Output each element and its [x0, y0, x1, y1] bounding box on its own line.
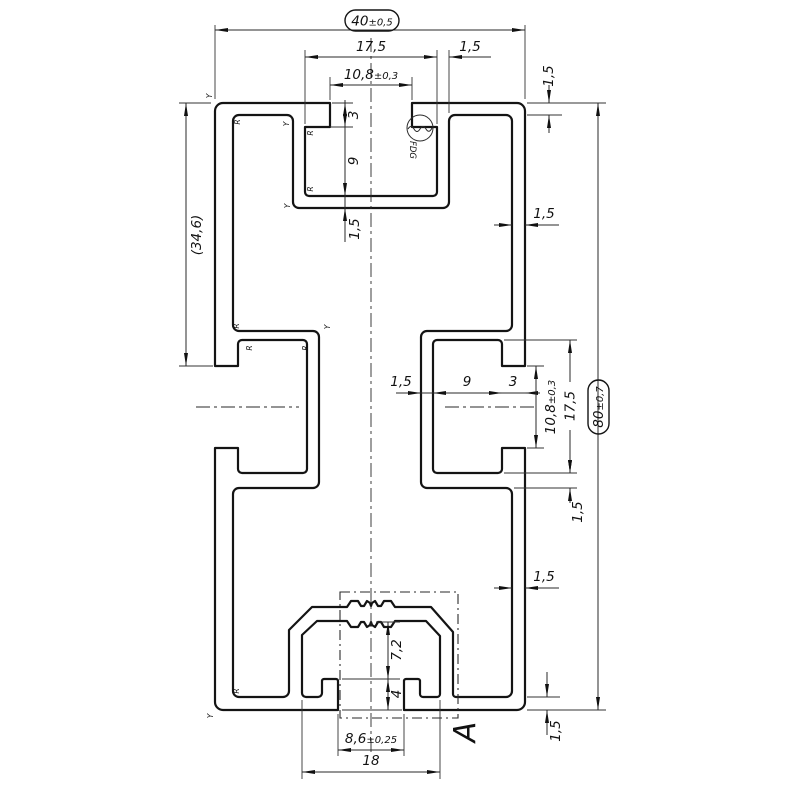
r-marker: R: [306, 130, 315, 135]
dim-top-wall-right: 1,5: [459, 39, 480, 55]
detail-label: A: [448, 722, 483, 745]
inner-hollow-contour: [233, 115, 512, 697]
dim-right-cavity-height: 17,5: [563, 391, 579, 421]
dim-ref-height-left: (34,6): [189, 215, 205, 256]
y-marker: Y: [205, 92, 214, 98]
dim-top-wall-thickness: 1,5: [541, 65, 557, 86]
dim-top-mouth: 10,8±0,3: [344, 67, 398, 83]
r-marker: R: [306, 186, 315, 191]
dimension-labels: 40±0,5 80±0,7 17,5 1,5 10,8±0,3 1,5 3 9 …: [189, 14, 607, 770]
drawing-canvas: A FDG: [0, 0, 800, 800]
dim-bottom-wall-thickness: 1,5: [548, 720, 564, 741]
r-marker: R: [301, 345, 310, 350]
dim-right-slot-depth: 9: [463, 374, 472, 390]
profile-outline: [215, 103, 525, 710]
y-marker: Y: [282, 120, 291, 126]
r-marker: R: [232, 323, 241, 328]
r-marker: R: [245, 345, 254, 350]
y-marker: Y: [283, 202, 292, 208]
r-marker: R: [232, 688, 241, 693]
dim-bottom-hook-height: 4: [389, 690, 405, 699]
extension-lines: [179, 25, 606, 779]
extrusion-profile-drawing: A FDG: [0, 0, 800, 800]
r-marker: R: [233, 119, 242, 124]
dim-top-slot-depth: 9: [346, 157, 362, 166]
dim-bottom-cavity-width: 18: [362, 753, 379, 769]
dim-right-mouth: 10,8±0,3: [543, 380, 559, 434]
y-marker: Y: [323, 323, 332, 329]
centerlines: [196, 38, 537, 756]
y-marker: Y: [206, 712, 215, 718]
dim-bottom-port-depth: 7,2: [389, 639, 405, 660]
dim-top-cavity-width: 17,5: [356, 39, 386, 55]
dim-right-slot-bottom-wall: 1,5: [570, 501, 586, 522]
dim-right-back-wall: 1,5: [390, 374, 411, 390]
dim-overall-width: 40±0,5: [351, 14, 392, 30]
dim-right-wall-upper: 1,5: [533, 206, 554, 222]
dim-overall-height: 80±0,7: [591, 386, 607, 428]
dim-top-slot-bottom-wall: 1,5: [347, 218, 363, 239]
fdg-label: FDG: [407, 141, 417, 159]
dim-right-lip-depth: 3: [509, 374, 518, 390]
dim-top-lip-depth: 3: [346, 111, 362, 120]
dim-right-wall-lower: 1,5: [533, 569, 554, 585]
profile-geometry: [215, 103, 525, 710]
